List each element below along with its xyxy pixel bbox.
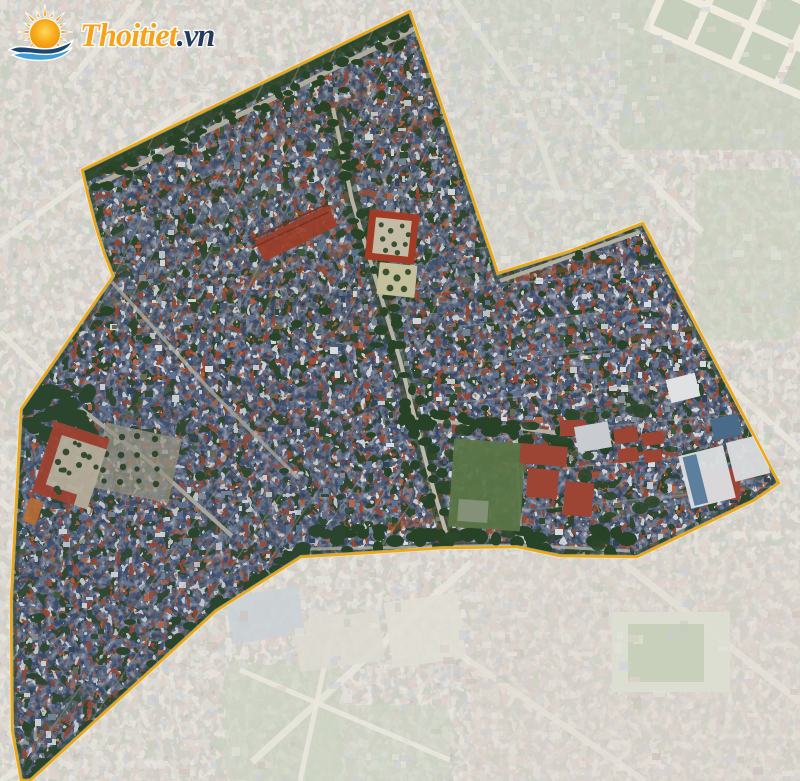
- svg-text:Thoitiet.vn: Thoitiet.vn: [80, 18, 214, 54]
